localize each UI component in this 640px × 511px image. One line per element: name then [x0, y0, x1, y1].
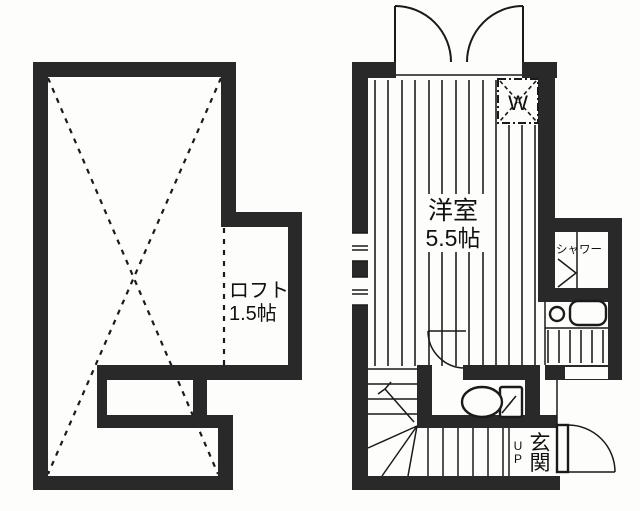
room-label-line2: 5.5帖	[426, 225, 481, 251]
toilet	[462, 387, 522, 417]
room-label: 洋室 5.5帖	[418, 194, 490, 252]
toilet-bowl	[462, 387, 502, 417]
kitchen-cabinet-stripes	[548, 330, 603, 363]
closet: W	[498, 79, 538, 123]
loft-label: ロフト 1.5帖	[229, 280, 289, 325]
loft-label-line2: 1.5帖	[229, 302, 277, 325]
up-label-char1: U	[514, 439, 523, 453]
toilet-door	[428, 331, 466, 368]
loft-walls	[33, 62, 302, 490]
shower-door	[558, 259, 576, 287]
main-floor-plan: W シャワー	[352, 6, 622, 490]
entrance-label: 玄 関 U P	[514, 432, 551, 475]
double-door	[395, 6, 523, 75]
kitchen-burner	[550, 307, 564, 321]
entrance-label-char2: 関	[530, 452, 551, 475]
kitchen-step	[565, 367, 608, 379]
loft-label-line1: ロフト	[229, 280, 289, 302]
entrance-door	[557, 425, 615, 472]
shower-room: シャワー	[556, 232, 602, 288]
closet-label: W	[508, 92, 528, 115]
floorplan-scan: ロフト 1.5帖	[0, 0, 640, 511]
shower-label: シャワー	[556, 244, 602, 256]
window-left-upper	[352, 233, 368, 261]
window-left-lower	[352, 277, 368, 305]
floorplan-svg: ロフト 1.5帖	[0, 0, 640, 511]
loft-floor-plan: ロフト 1.5帖	[33, 62, 302, 490]
room-label-line1: 洋室	[428, 197, 478, 225]
main-walls	[352, 62, 622, 490]
up-label-char2: P	[514, 452, 522, 466]
stairs-up-arrow	[378, 382, 414, 422]
kitchen-sink	[570, 301, 606, 325]
